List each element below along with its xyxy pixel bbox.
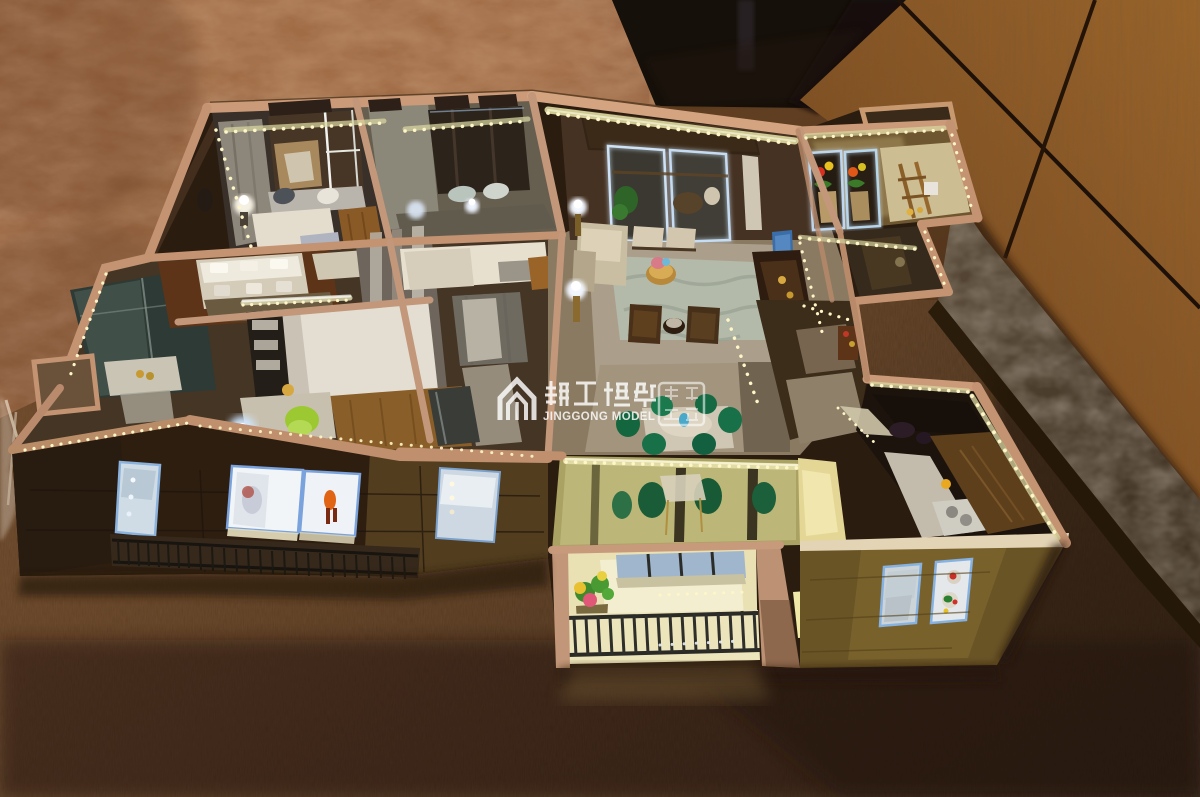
svg-text:JINGGONG MODEL: JINGGONG MODEL [543,411,655,423]
